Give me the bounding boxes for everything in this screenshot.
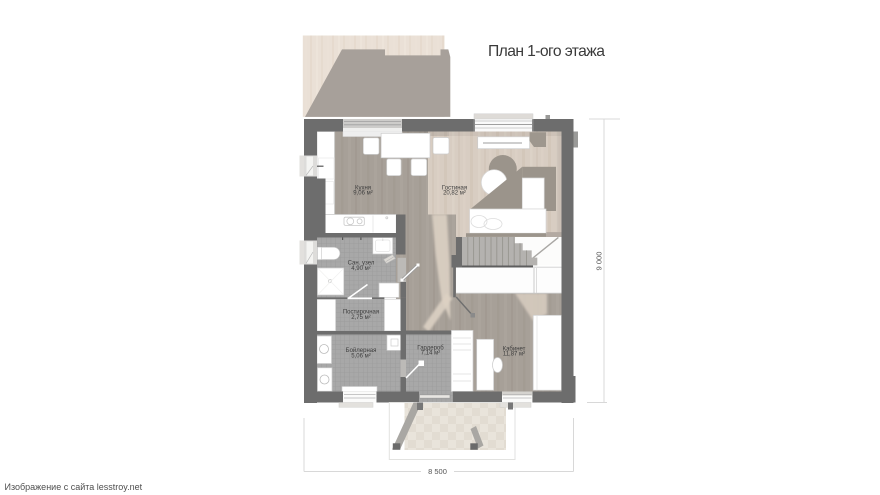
svg-text:9,06 м²: 9,06 м² bbox=[353, 190, 372, 196]
svg-text:7,14 м²: 7,14 м² bbox=[421, 351, 440, 357]
svg-text:5,06 м²: 5,06 м² bbox=[351, 353, 370, 359]
svg-text:Изображение с сайта lesstroy.n: Изображение с сайта lesstroy.net bbox=[5, 482, 143, 492]
svg-text:4,90 м²: 4,90 м² bbox=[351, 266, 370, 272]
svg-text:11,87 м²: 11,87 м² bbox=[503, 352, 525, 358]
svg-text:План 1-ого этажа: План 1-ого этажа bbox=[488, 43, 605, 60]
svg-text:2,75 м²: 2,75 м² bbox=[351, 315, 370, 321]
svg-text:8 500: 8 500 bbox=[428, 467, 447, 476]
svg-text:9 000: 9 000 bbox=[595, 251, 604, 270]
svg-text:20,82 м²: 20,82 м² bbox=[443, 190, 466, 196]
